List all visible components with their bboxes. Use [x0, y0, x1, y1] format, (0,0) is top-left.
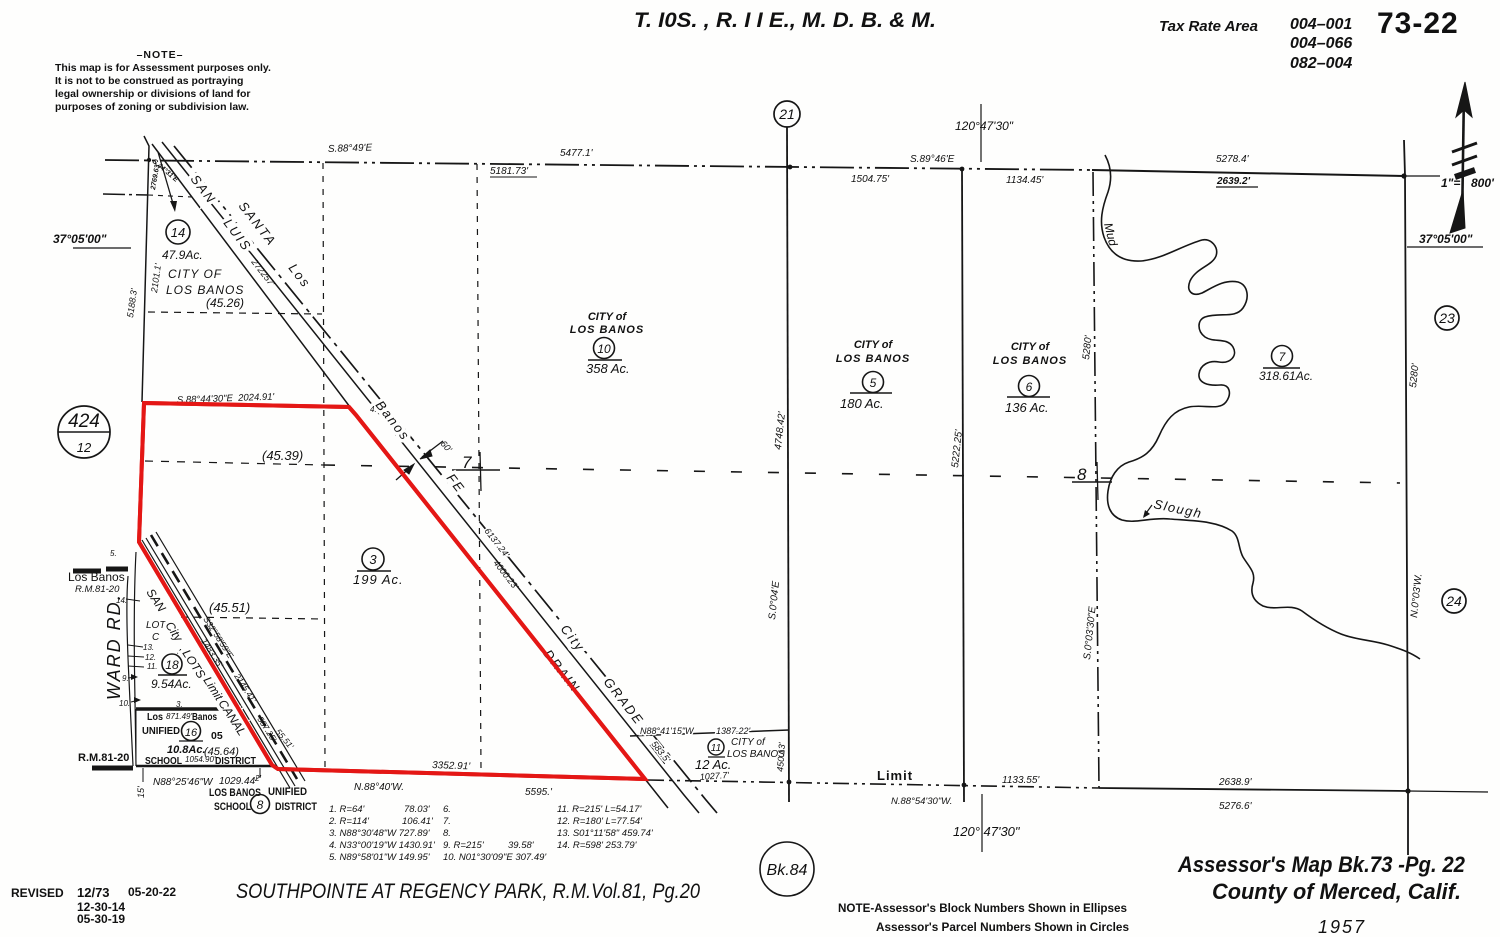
svg-text:1134.45': 1134.45' [1006, 175, 1044, 186]
svg-text:Tax Rate Area: Tax Rate Area [1159, 18, 1258, 35]
svg-text:UNIFIED: UNIFIED [268, 786, 307, 798]
svg-text:18: 18 [165, 658, 179, 672]
svg-text:5.: 5. [110, 549, 117, 558]
svg-text:05-30-19: 05-30-19 [77, 912, 125, 926]
svg-text:004–066: 004–066 [1290, 35, 1352, 52]
svg-text:SCHOOL: SCHOOL [214, 801, 251, 813]
svg-text:WARD RD.: WARD RD. [104, 593, 124, 700]
svg-text:47.9Ac.: 47.9Ac. [162, 248, 203, 262]
svg-text:1"=: 1"= [1441, 176, 1460, 190]
svg-text:78.03': 78.03' [404, 804, 431, 815]
svg-text:REVISED: REVISED [11, 886, 64, 900]
svg-text:CITY of: CITY of [1011, 341, 1051, 353]
svg-text:CITY of: CITY of [731, 737, 766, 748]
svg-text:5. N89°58'01"W 149.95': 5. N89°58'01"W 149.95' [329, 852, 431, 863]
svg-text:05-20-22: 05-20-22 [128, 885, 176, 899]
svg-text:450.13': 450.13' [775, 742, 787, 772]
svg-text:082–004: 082–004 [1290, 55, 1352, 72]
svg-text:LOS BANOS: LOS BANOS [836, 353, 910, 365]
svg-text:4. N33°00'19"W 1430.91': 4. N33°00'19"W 1430.91' [329, 840, 436, 851]
svg-text:37°05'00": 37°05'00" [1419, 232, 1473, 246]
svg-text:14.: 14. [116, 596, 127, 605]
svg-text:23: 23 [1438, 310, 1455, 326]
svg-text:Banos: Banos [192, 711, 217, 723]
svg-text:LOS BANOS: LOS BANOS [166, 283, 244, 297]
svg-text:16: 16 [185, 727, 198, 739]
svg-text:LOS BANOS: LOS BANOS [993, 355, 1067, 367]
svg-text:11: 11 [711, 743, 721, 754]
svg-text:CITY of: CITY of [854, 339, 894, 351]
svg-text:1027.7': 1027.7' [699, 770, 729, 782]
svg-text:39.58': 39.58' [508, 840, 535, 851]
svg-text:318.61Ac.: 318.61Ac. [1259, 369, 1313, 383]
svg-text:9.: 9. [122, 674, 129, 683]
svg-text:S.88°49'E: S.88°49'E [328, 142, 373, 155]
svg-text:DISTRICT: DISTRICT [275, 801, 317, 813]
svg-text:N88°41'15"W: N88°41'15"W [640, 726, 695, 736]
svg-text:10.: 10. [119, 699, 130, 708]
svg-text:T. I0S. , R. I I E., M. D. B.: T. I0S. , R. I I E., M. D. B. & M. [634, 9, 936, 32]
svg-text:5276.6': 5276.6' [1219, 801, 1253, 812]
svg-text:2639.2': 2639.2' [1216, 176, 1251, 187]
svg-text:C: C [152, 632, 160, 643]
svg-text:CITY OF: CITY OF [168, 267, 222, 281]
svg-text:12.: 12. [145, 653, 156, 662]
svg-text:S.89°46'E: S.89°46'E [910, 154, 955, 165]
svg-text:SOUTHPOINTE AT REGENCY PARK, R: SOUTHPOINTE AT REGENCY PARK, R.M.Vol.81,… [236, 880, 700, 903]
svg-text:13. S01°11'58" 459.74': 13. S01°11'58" 459.74' [557, 828, 654, 839]
svg-text:73-22: 73-22 [1377, 7, 1459, 40]
svg-text:05: 05 [211, 730, 223, 742]
svg-text:12/73: 12/73 [77, 885, 110, 900]
svg-text:DISTRICT: DISTRICT [215, 755, 256, 767]
svg-text:004–001: 004–001 [1290, 16, 1352, 33]
svg-text:15': 15' [136, 786, 146, 798]
svg-text:N.88°40'W.: N.88°40'W. [354, 782, 404, 793]
svg-text:(45.26): (45.26) [206, 296, 244, 310]
svg-text:13.: 13. [143, 643, 154, 652]
svg-text:37°05'00": 37°05'00" [53, 232, 107, 246]
svg-text:4.: 4. [370, 405, 377, 414]
svg-text:3: 3 [369, 552, 377, 567]
svg-text:424: 424 [68, 411, 100, 432]
svg-text:purposes of zoning or subdivis: purposes of zoning or subdivision law. [55, 101, 249, 113]
svg-text:10: 10 [597, 342, 611, 356]
svg-text:8.: 8. [443, 828, 451, 839]
svg-text:9. R=215': 9. R=215' [443, 840, 485, 851]
svg-text:21: 21 [778, 106, 795, 122]
svg-text:LOS BANOS: LOS BANOS [570, 324, 644, 336]
svg-text:14: 14 [171, 225, 185, 240]
svg-text:1387.22': 1387.22' [716, 726, 751, 736]
svg-text:1. R=64': 1. R=64' [329, 804, 366, 815]
svg-text:(45.51): (45.51) [209, 600, 250, 615]
svg-text:SCHOOL: SCHOOL [145, 755, 182, 767]
svg-text:legal ownership or divisions o: legal ownership or divisions of land for [55, 88, 250, 100]
svg-text:800': 800' [1471, 176, 1495, 190]
svg-text:5595.': 5595.' [525, 787, 553, 798]
svg-text:12. R=180' L=77.54': 12. R=180' L=77.54' [557, 816, 643, 827]
svg-text:2638.9': 2638.9' [1218, 777, 1253, 788]
svg-text:R.M.81-20: R.M.81-20 [78, 752, 129, 764]
svg-text:11. R=215' L=54.17': 11. R=215' L=54.17' [557, 804, 642, 815]
svg-text:Limit: Limit [877, 768, 913, 783]
svg-text:120°47'30": 120°47'30" [955, 119, 1014, 133]
svg-text:1957: 1957 [1318, 917, 1366, 937]
svg-text:3.: 3. [176, 700, 183, 709]
svg-text:6.: 6. [443, 804, 451, 815]
svg-text:180 Ac.: 180 Ac. [840, 396, 884, 411]
svg-text:It is not to be construed as p: It is not to be construed as portraying [55, 75, 243, 87]
svg-text:N.88°54'30"W.: N.88°54'30"W. [891, 796, 952, 807]
svg-text:R.M.81-20: R.M.81-20 [75, 584, 120, 595]
svg-text:8: 8 [1077, 465, 1087, 484]
svg-text:5278.4': 5278.4' [1216, 154, 1250, 165]
svg-text:24: 24 [1445, 593, 1462, 609]
svg-text:9.54Ac.: 9.54Ac. [151, 677, 192, 691]
svg-text:County of Merced, Calif.: County of Merced, Calif. [1212, 879, 1461, 904]
svg-text:CITY of: CITY of [588, 311, 628, 323]
svg-text:10. N01°30'09"E 307.49': 10. N01°30'09"E 307.49' [443, 852, 547, 863]
svg-text:5181.73': 5181.73' [490, 166, 529, 177]
svg-text:–NOTE–: –NOTE– [137, 49, 184, 61]
svg-text:106.41': 106.41' [402, 816, 434, 827]
svg-text:1133.55': 1133.55' [1002, 775, 1040, 786]
svg-text:Assessor's Parcel Numbers Show: Assessor's Parcel Numbers Shown in Circl… [876, 922, 1129, 934]
svg-text:1029.44': 1029.44' [219, 776, 258, 787]
svg-text:N88°25'46"W: N88°25'46"W [153, 777, 214, 788]
svg-text:7: 7 [462, 453, 472, 472]
svg-text:2. R=114': 2. R=114' [328, 816, 370, 827]
svg-text:14. R=598' 253.79': 14. R=598' 253.79' [557, 840, 638, 851]
svg-text:871.49': 871.49' [166, 712, 192, 721]
svg-text:Assessor's Map Bk.73 -Pg. 22: Assessor's Map Bk.73 -Pg. 22 [1177, 852, 1466, 877]
svg-text:11.: 11. [147, 662, 158, 671]
svg-text:120° 47'30": 120° 47'30" [953, 824, 1021, 839]
svg-text:Los: Los [147, 711, 163, 723]
svg-text:1054.90': 1054.90' [185, 755, 216, 764]
svg-text:UNIFIED: UNIFIED [142, 725, 180, 737]
svg-text:1504.75': 1504.75' [851, 174, 890, 185]
svg-text:358 Ac.: 358 Ac. [586, 361, 630, 376]
svg-text:199 Ac.: 199 Ac. [353, 572, 404, 587]
svg-text:NOTE-Assessor's Block Numbers: NOTE-Assessor's Block Numbers Shown in E… [838, 903, 1127, 915]
svg-text:8: 8 [257, 798, 264, 812]
svg-text:(45.39): (45.39) [262, 448, 303, 463]
svg-text:Bk.84: Bk.84 [767, 862, 808, 879]
svg-text:7.: 7. [443, 816, 451, 827]
svg-text:5477.1': 5477.1' [560, 148, 594, 159]
svg-text:This map is for Assessment pur: This map is for Assessment purposes only… [55, 62, 271, 74]
svg-text:5: 5 [870, 376, 877, 390]
svg-text:3. N88°30'48"W 727.89': 3. N88°30'48"W 727.89' [329, 828, 431, 839]
svg-text:6: 6 [1026, 380, 1033, 394]
svg-text:3352.91': 3352.91' [432, 760, 472, 772]
svg-text:136 Ac.: 136 Ac. [1005, 400, 1049, 415]
svg-text:12: 12 [77, 440, 92, 455]
